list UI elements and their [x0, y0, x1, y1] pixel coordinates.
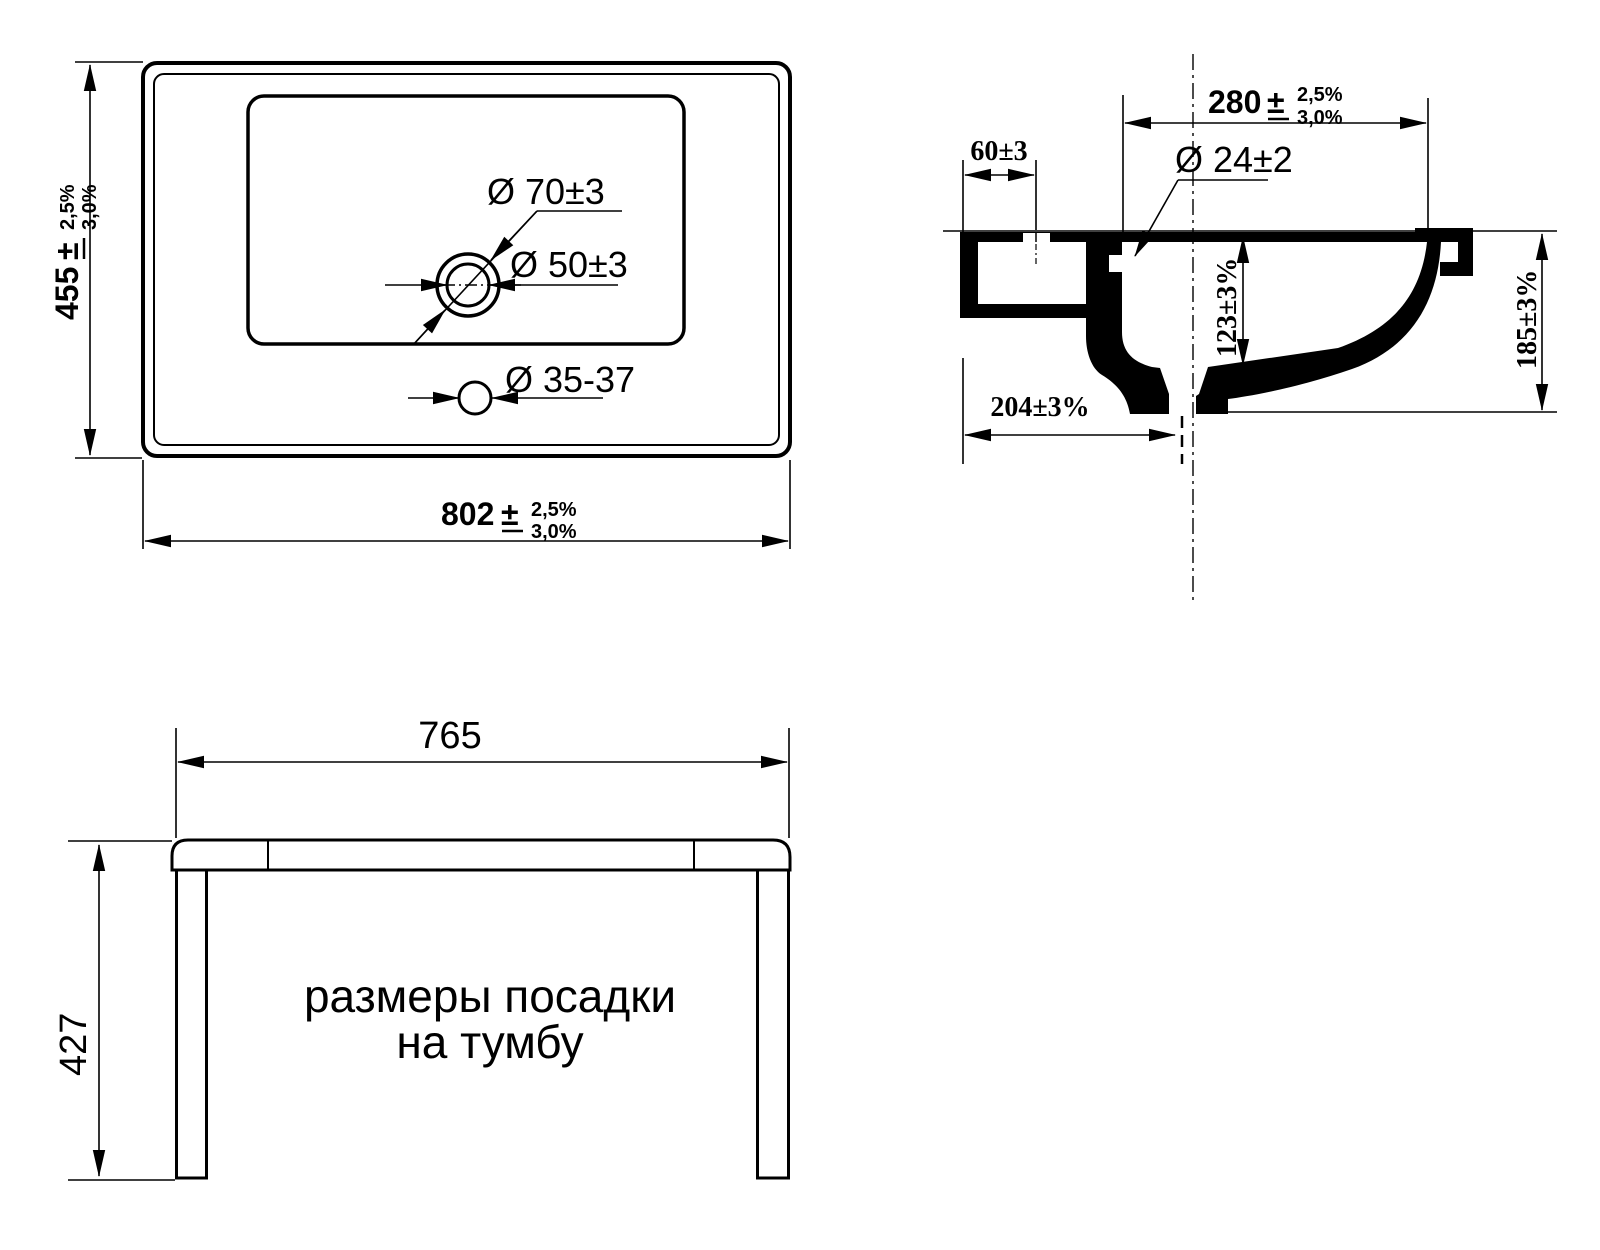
bowl-width-tol-lower: 3,0%	[1297, 107, 1343, 129]
drain-offset-label: 204±3%	[990, 392, 1089, 423]
width-dimension-802: 802 ± 2,5% 3,0%	[143, 460, 790, 549]
overflow-label: Ø 24±2	[1175, 139, 1293, 180]
faucet-hole-label: Ø 35-37	[505, 359, 635, 400]
total-height-dimension-185: 185±3%	[1512, 234, 1543, 410]
drain-inner-dim: Ø 50±3	[385, 244, 628, 285]
mount-height-dimension-427: 427	[53, 841, 175, 1180]
mounting-top-bar	[172, 840, 790, 870]
drain-inner-label: Ø 50±3	[510, 244, 628, 285]
height-pm: ±	[49, 242, 85, 260]
mounting-view: 765 427 размеры посадки на тумбу	[53, 715, 790, 1180]
height-dimension-455: 455 ± 2,5% 3,0%	[49, 62, 143, 458]
height-tol-lower: 3,0%	[79, 184, 101, 230]
bowl-width-value: 280	[1208, 84, 1261, 120]
right-leg	[758, 870, 789, 1178]
width-tol-upper: 2,5%	[531, 499, 577, 521]
sink-technical-drawing: Ø 70±3 Ø 50±3 Ø 35-37 455 ± 2,5% 3,0%	[0, 0, 1600, 1250]
total-height-label: 185±3%	[1512, 270, 1543, 369]
width-value: 802	[441, 496, 494, 532]
drawing-sheet: Ø 70±3 Ø 50±3 Ø 35-37 455 ± 2,5% 3,0%	[0, 0, 1600, 1250]
ledge-bottom-section	[960, 304, 1088, 318]
bowl-width-tol-upper: 2,5%	[1297, 84, 1343, 106]
back-edge-label: 60±3	[970, 136, 1027, 167]
mount-height-label: 427	[53, 1013, 95, 1076]
inner-depth-label: 123±3%	[1212, 258, 1243, 357]
mounting-caption-line2: на тумбу	[396, 1016, 583, 1068]
side-view: 280 ± 2,5% 3,0% 60±3 Ø 24±2 123±3%	[943, 54, 1557, 600]
mounting-caption-line1: размеры посадки	[304, 970, 676, 1022]
overflow-hole-section	[1109, 255, 1122, 272]
back-edge-dimension-60: 60±3	[963, 136, 1036, 232]
drain-outer-label: Ø 70±3	[487, 171, 605, 212]
left-leg	[177, 870, 207, 1178]
height-value: 455	[49, 267, 85, 320]
height-tol-upper: 2,5%	[57, 184, 79, 230]
bowl-width-pm: ±	[1267, 84, 1285, 120]
faucet-hole-dim: Ø 35-37	[408, 359, 635, 400]
top-view: Ø 70±3 Ø 50±3 Ø 35-37 455 ± 2,5% 3,0%	[49, 62, 790, 549]
inner-depth-dimension-123: 123±3%	[1212, 237, 1243, 365]
width-pm: ±	[501, 496, 519, 532]
mount-width-dimension-765: 765	[176, 715, 789, 838]
bowl-rear-wall-section	[1086, 240, 1169, 414]
basin-outer-edge	[143, 63, 790, 456]
faucet-hole	[459, 382, 491, 414]
mount-width-label: 765	[418, 715, 481, 757]
width-tol-lower: 3,0%	[531, 521, 577, 543]
